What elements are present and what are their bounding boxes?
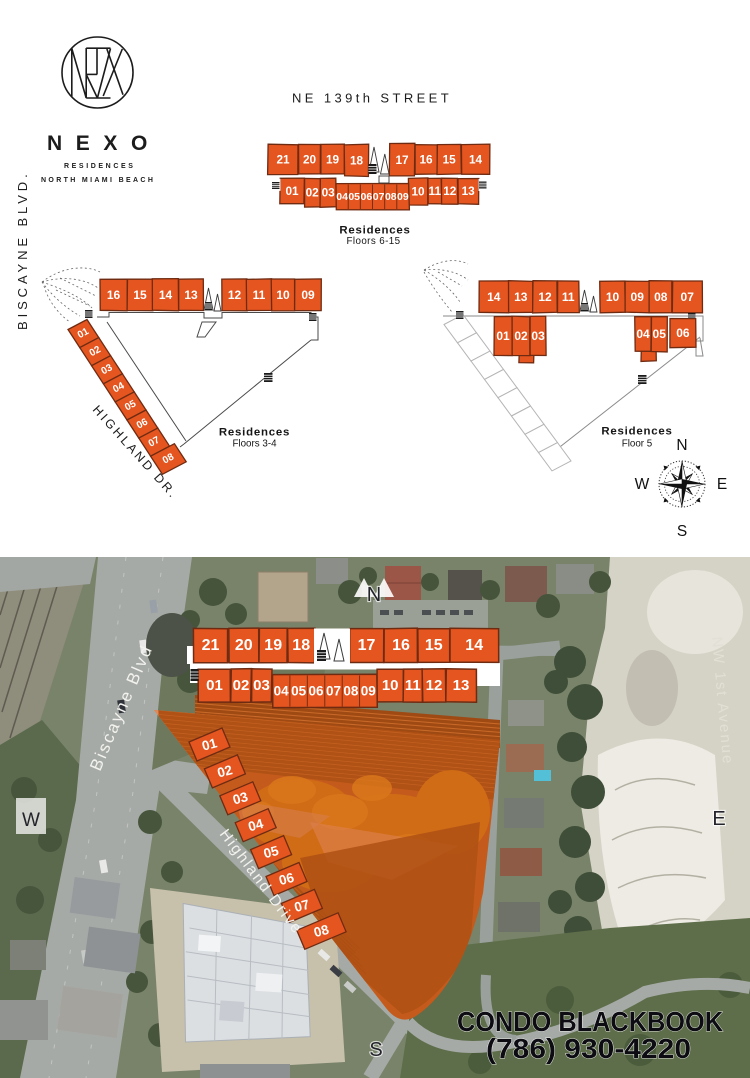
svg-text:13: 13 (462, 184, 476, 198)
svg-text:15: 15 (133, 288, 147, 302)
svg-text:NORTH MIAMI BEACH: NORTH MIAMI BEACH (41, 177, 155, 184)
svg-text:07: 07 (326, 684, 341, 699)
svg-text:(786) 930-4220: (786) 930-4220 (486, 1033, 691, 1064)
svg-text:20: 20 (303, 152, 317, 166)
svg-text:04: 04 (274, 684, 290, 699)
svg-text:19: 19 (326, 152, 340, 166)
svg-text:02: 02 (306, 186, 320, 200)
svg-text:03: 03 (531, 329, 545, 343)
svg-text:NEXO: NEXO (47, 132, 161, 155)
svg-text:N: N (676, 437, 687, 454)
svg-text:Residences: Residences (601, 426, 672, 438)
svg-text:12: 12 (443, 184, 457, 198)
svg-text:12: 12 (426, 677, 443, 694)
svg-text:BISCAYNE BLVD.: BISCAYNE BLVD. (15, 170, 30, 330)
svg-text:16: 16 (107, 288, 121, 302)
svg-text:S: S (677, 523, 687, 540)
svg-text:N: N (367, 584, 381, 606)
svg-text:10: 10 (382, 677, 399, 694)
svg-text:06: 06 (308, 684, 324, 699)
svg-text:14: 14 (469, 152, 483, 166)
svg-text:10: 10 (606, 290, 620, 304)
svg-text:15: 15 (425, 637, 443, 654)
svg-text:09: 09 (361, 684, 376, 699)
svg-text:W: W (635, 476, 650, 493)
svg-text:S: S (369, 1039, 382, 1061)
svg-text:01: 01 (496, 329, 510, 343)
svg-text:07: 07 (373, 191, 385, 203)
svg-text:10: 10 (276, 288, 290, 302)
svg-text:Floor 5: Floor 5 (622, 439, 653, 450)
svg-text:W: W (22, 810, 40, 831)
svg-text:06: 06 (676, 326, 690, 340)
svg-text:08: 08 (654, 290, 668, 304)
svg-text:03: 03 (322, 186, 336, 200)
svg-text:10: 10 (411, 185, 425, 199)
svg-text:E: E (717, 476, 727, 493)
svg-text:01: 01 (285, 184, 299, 198)
svg-text:Floors 6-15: Floors 6-15 (347, 236, 401, 247)
svg-text:14: 14 (487, 290, 501, 304)
svg-text:09: 09 (301, 288, 315, 302)
svg-text:04: 04 (636, 327, 650, 341)
svg-text:19: 19 (264, 637, 282, 654)
svg-text:06: 06 (361, 191, 373, 203)
svg-text:07: 07 (681, 290, 695, 304)
svg-text:11: 11 (429, 184, 442, 198)
svg-text:13: 13 (514, 290, 528, 304)
svg-text:08: 08 (343, 684, 359, 699)
svg-text:13: 13 (184, 288, 198, 302)
svg-text:03: 03 (253, 677, 270, 694)
svg-text:14: 14 (159, 288, 173, 302)
svg-text:RESIDENCES: RESIDENCES (64, 163, 136, 170)
svg-text:02: 02 (233, 677, 250, 694)
svg-text:Residences: Residences (339, 225, 410, 237)
svg-text:17: 17 (358, 637, 376, 654)
svg-text:11: 11 (405, 677, 421, 694)
svg-text:15: 15 (443, 152, 457, 166)
svg-text:09: 09 (631, 290, 645, 304)
svg-text:NE 139th STREET: NE 139th STREET (292, 91, 452, 106)
svg-text:18: 18 (292, 637, 310, 654)
svg-text:16: 16 (392, 637, 410, 654)
svg-text:05: 05 (348, 191, 360, 203)
svg-text:17: 17 (395, 153, 409, 167)
svg-text:13: 13 (453, 677, 470, 694)
svg-text:Floors 3-4: Floors 3-4 (232, 439, 277, 450)
svg-text:14: 14 (465, 637, 483, 654)
svg-text:16: 16 (419, 152, 433, 166)
svg-text:02: 02 (514, 329, 528, 343)
svg-text:01: 01 (206, 677, 223, 694)
svg-text:11: 11 (562, 290, 575, 304)
svg-text:20: 20 (235, 637, 253, 654)
svg-text:12: 12 (228, 288, 242, 302)
svg-text:21: 21 (276, 152, 290, 166)
svg-text:09: 09 (397, 191, 409, 203)
svg-text:05: 05 (653, 327, 667, 341)
svg-text:05: 05 (291, 684, 307, 699)
svg-text:E: E (712, 808, 725, 830)
svg-text:21: 21 (202, 637, 220, 654)
svg-text:04: 04 (336, 191, 348, 203)
svg-text:18: 18 (350, 153, 364, 167)
svg-text:12: 12 (538, 290, 552, 304)
svg-text:Residences: Residences (219, 427, 290, 439)
svg-text:08: 08 (385, 191, 397, 203)
svg-text:11: 11 (253, 288, 266, 302)
